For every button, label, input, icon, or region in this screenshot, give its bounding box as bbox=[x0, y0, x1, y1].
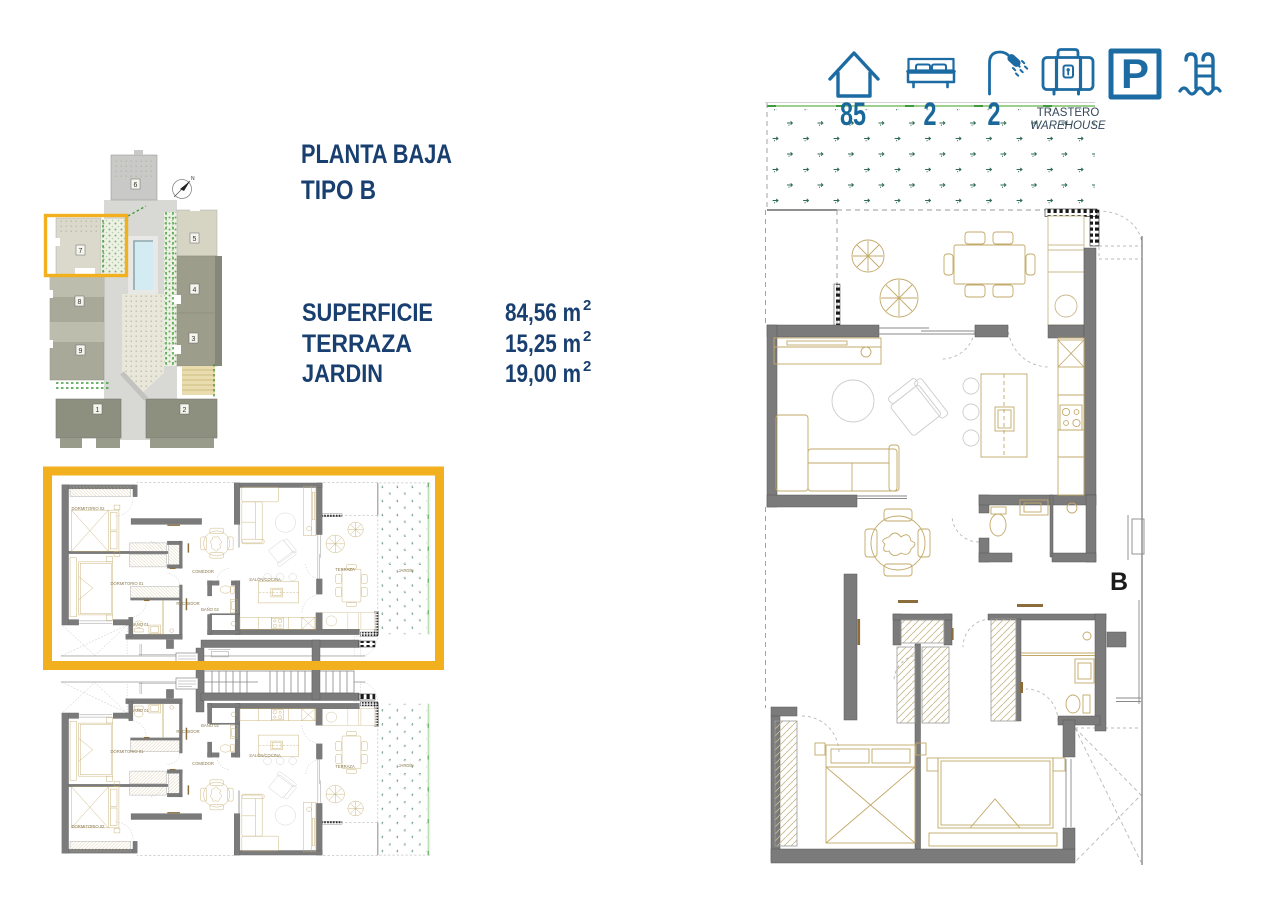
svg-text:TRASTERO: TRASTERO bbox=[1037, 107, 1100, 119]
svg-text:2: 2 bbox=[583, 297, 591, 314]
svg-text:PLANTA BAJA: PLANTA BAJA bbox=[301, 139, 452, 169]
svg-text:DORMITORIO 02: DORMITORIO 02 bbox=[72, 824, 106, 829]
svg-text:85: 85 bbox=[840, 96, 866, 132]
svg-text:5: 5 bbox=[193, 236, 197, 243]
svg-text:1: 1 bbox=[96, 407, 100, 414]
svg-text:WAREHOUSE: WAREHOUSE bbox=[1030, 120, 1106, 132]
svg-text:SALÓN/COCINA: SALÓN/COCINA bbox=[249, 577, 281, 582]
svg-text:3: 3 bbox=[192, 336, 196, 343]
svg-text:19,00 m: 19,00 m bbox=[505, 360, 581, 388]
svg-text:RECIBIDOR: RECIBIDOR bbox=[176, 601, 199, 606]
svg-text:DORMITORIO 02: DORMITORIO 02 bbox=[72, 506, 106, 511]
svg-text:N: N bbox=[191, 176, 195, 182]
svg-text:15,25 m: 15,25 m bbox=[505, 330, 581, 358]
svg-text:RECIBIDOR: RECIBIDOR bbox=[176, 729, 199, 734]
svg-text:6: 6 bbox=[134, 182, 138, 189]
svg-text:TERRAZA: TERRAZA bbox=[335, 764, 355, 769]
svg-text:B: B bbox=[1110, 568, 1128, 596]
svg-text:TIPO B: TIPO B bbox=[301, 175, 376, 205]
svg-text:84,56 m: 84,56 m bbox=[505, 299, 581, 327]
svg-text:BAÑO 01: BAÑO 01 bbox=[131, 708, 149, 713]
svg-text:DORMITORIO 01: DORMITORIO 01 bbox=[111, 749, 145, 754]
svg-text:9: 9 bbox=[79, 348, 83, 355]
svg-text:P: P bbox=[1121, 50, 1149, 97]
svg-text:TERRAZA: TERRAZA bbox=[335, 567, 355, 572]
svg-text:JARDÍN: JARDÍN bbox=[398, 568, 413, 573]
svg-text:JARDÍN: JARDÍN bbox=[398, 763, 413, 768]
svg-text:2: 2 bbox=[924, 96, 937, 132]
svg-text:TERRAZA: TERRAZA bbox=[302, 330, 412, 358]
svg-text:SUPERFICIE: SUPERFICIE bbox=[302, 299, 433, 327]
svg-text:2: 2 bbox=[583, 358, 591, 375]
svg-text:BAÑO 02: BAÑO 02 bbox=[201, 607, 219, 612]
svg-text:2: 2 bbox=[988, 96, 1001, 132]
svg-text:4: 4 bbox=[193, 287, 197, 294]
svg-text:COMEDOR: COMEDOR bbox=[192, 569, 214, 574]
svg-text:BAÑO 02: BAÑO 02 bbox=[201, 723, 219, 728]
svg-text:2: 2 bbox=[583, 328, 591, 345]
svg-text:SALÓN/COCINA: SALÓN/COCINA bbox=[249, 753, 281, 758]
svg-text:JARDIN: JARDIN bbox=[302, 360, 383, 388]
svg-text:7: 7 bbox=[79, 248, 83, 255]
svg-text:BAÑO 01: BAÑO 01 bbox=[131, 622, 149, 627]
svg-text:COMEDOR: COMEDOR bbox=[192, 761, 214, 766]
svg-text:8: 8 bbox=[78, 299, 82, 306]
svg-text:DORMITORIO 01: DORMITORIO 01 bbox=[111, 581, 145, 586]
svg-text:2: 2 bbox=[183, 407, 187, 414]
